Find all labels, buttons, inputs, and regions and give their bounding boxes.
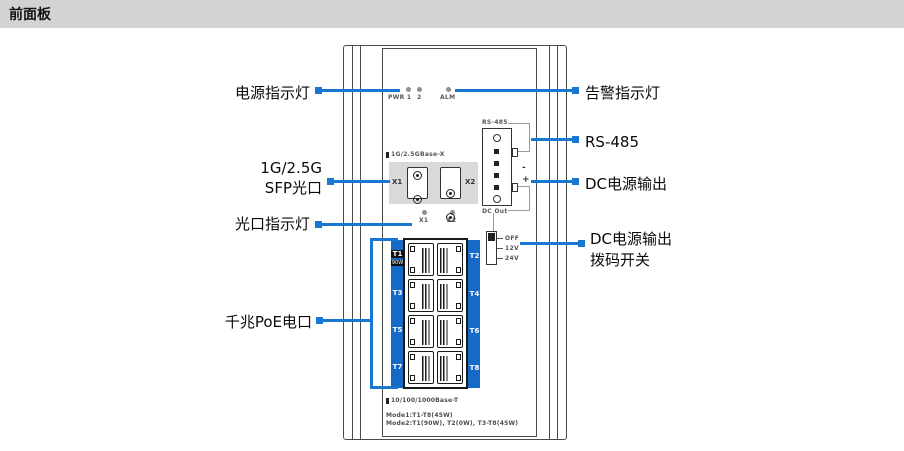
rj45-pins xyxy=(440,284,449,309)
callout-square xyxy=(572,178,579,185)
rj45-latch-tab xyxy=(456,318,461,324)
connector-line xyxy=(529,123,530,152)
poe-port-label: T5 xyxy=(391,326,404,334)
callout-bracket-poe-bottom xyxy=(370,386,398,389)
callout-square xyxy=(572,136,579,143)
rj45-latch-tab xyxy=(456,354,461,360)
rj45-port xyxy=(437,315,463,348)
rj45-port xyxy=(437,279,463,312)
terminal-tab-upper xyxy=(512,148,518,157)
rj45-port xyxy=(408,279,434,312)
rj45-latch-tab xyxy=(410,267,415,273)
callout-line-dc-output xyxy=(531,180,572,183)
rj45-latch-tab xyxy=(456,339,461,345)
callout-sfp-label: 1G/2.5GSFP光口 xyxy=(180,158,322,198)
poe-port-label: T2 xyxy=(468,252,481,260)
dip-12v-label: 12V xyxy=(505,245,519,252)
rj45-latch-tab xyxy=(456,246,461,252)
rj45-pins xyxy=(440,320,449,345)
terminal-pin xyxy=(494,185,499,190)
dip-tick xyxy=(497,258,503,259)
callout-line-optical-led xyxy=(315,223,412,226)
sfp-x2-label: X2 xyxy=(465,178,475,186)
poe-port-label: T6 xyxy=(468,327,481,335)
connector-line xyxy=(508,210,530,211)
terminal-pin xyxy=(494,173,499,178)
terminal-tab-lower xyxy=(512,183,518,192)
sfp-x1-label: X1 xyxy=(392,178,402,186)
sfp-bore xyxy=(413,195,422,204)
alarm-led-dot xyxy=(446,87,451,92)
rj45-latch-tab xyxy=(410,303,415,309)
chassis-rail-line xyxy=(352,46,353,439)
callout-dip-line1: DC电源输出 xyxy=(590,230,672,248)
callout-sfp-line1: 1G/2.5G xyxy=(260,159,322,177)
callout-bracket-poe-top xyxy=(370,238,398,241)
callout-line-dip-switch xyxy=(520,242,578,245)
rj45-latch-tab xyxy=(456,303,461,309)
chassis-rail-line xyxy=(360,46,361,439)
callout-bracket-poe xyxy=(370,238,373,389)
mode1-label: Mode1:T1-T8(45W) xyxy=(386,412,453,419)
t1-power-badge: 90W xyxy=(391,260,404,266)
rj45-pins xyxy=(422,284,431,309)
callout-power-led-label: 电源指示灯 xyxy=(160,83,310,103)
dip-tick xyxy=(497,238,503,239)
poe-port-label: T3 xyxy=(391,289,404,297)
page-title: 前面板 xyxy=(9,4,51,24)
callout-dip-line2: 拨码开关 xyxy=(590,251,650,269)
optical-led-x1-label: X1 xyxy=(419,217,428,224)
dc-out-port-label: DC Out xyxy=(482,208,508,215)
connector-line xyxy=(508,123,530,124)
callout-line-rs485 xyxy=(531,138,572,141)
rj45-latch-tab xyxy=(410,354,415,360)
callout-line-sfp xyxy=(327,180,390,183)
dip-off-label: OFF xyxy=(505,235,519,242)
poe-port-label: T8 xyxy=(468,364,481,372)
rs485-port-label: RS-485 xyxy=(482,119,508,126)
callout-alarm-led-label: 告警指示灯 xyxy=(585,83,660,103)
sfp-section-label: 1G/2.5GBase-X xyxy=(391,151,445,158)
optical-led-x1-dot xyxy=(422,210,427,215)
header-bar: 前面板 xyxy=(0,0,904,28)
poe-port-label: T7 xyxy=(391,363,404,371)
rj45-pins xyxy=(422,320,431,345)
plus-sign-label: + xyxy=(522,175,530,185)
pwr2-led-dot xyxy=(417,87,422,92)
dip-tick xyxy=(497,248,503,249)
callout-sfp-line2: SFP光口 xyxy=(265,179,322,197)
rj45-port xyxy=(437,243,463,276)
rj45-latch-tab xyxy=(410,339,415,345)
callout-optical-led-label: 光口指示灯 xyxy=(160,214,310,234)
section-marker-icon xyxy=(386,152,389,158)
terminal-pin xyxy=(494,161,499,166)
connector-line xyxy=(529,186,530,211)
alarm-led-label: ALM xyxy=(440,94,455,101)
rj45-port xyxy=(408,351,434,384)
rj45-pins xyxy=(440,356,449,381)
mode2-label: Mode2:T1(90W), T2(0W), T3-T8(45W) xyxy=(386,420,518,427)
callout-line-power-led xyxy=(315,89,400,92)
pwr1-led-dot xyxy=(406,87,411,92)
base-t-label: 10/100/1000Base-T xyxy=(391,397,458,404)
callout-dc-output-label: DC电源输出 xyxy=(585,174,667,194)
rj45-port xyxy=(437,351,463,384)
rj45-port xyxy=(408,243,434,276)
callout-square xyxy=(578,240,585,247)
sfp-bore xyxy=(446,213,455,222)
minus-sign-label: - xyxy=(522,163,526,173)
pwr-led-label: PWR 1 xyxy=(388,94,411,101)
callout-square xyxy=(572,87,579,94)
callout-rs485-label: RS-485 xyxy=(585,132,639,152)
connector-line xyxy=(493,213,494,233)
rj45-pins xyxy=(440,248,449,273)
rj45-pins xyxy=(422,248,431,273)
callout-line-alarm-led xyxy=(455,89,572,92)
rj45-latch-tab xyxy=(410,318,415,324)
callout-poe-label: 千兆PoE电口 xyxy=(160,312,312,332)
callout-dip-switch-label: DC电源输出拨码开关 xyxy=(590,229,672,271)
section-marker-icon xyxy=(386,398,389,404)
sfp-bore xyxy=(446,189,455,198)
dip-switch-knob xyxy=(488,233,495,241)
terminal-screw-bottom xyxy=(493,195,501,203)
sfp-bore xyxy=(413,171,422,180)
rj45-latch-tab xyxy=(456,375,461,381)
dip-24v-label: 24V xyxy=(505,255,519,262)
rj45-latch-tab xyxy=(456,282,461,288)
rj45-port xyxy=(408,315,434,348)
terminal-screw-top xyxy=(493,134,501,142)
rj45-latch-tab xyxy=(410,246,415,252)
pwr2-led-label: 2 xyxy=(417,94,421,101)
rj45-latch-tab xyxy=(456,267,461,273)
rj45-pins xyxy=(422,356,431,381)
poe-port-label: T1 xyxy=(391,250,404,258)
rj45-latch-tab xyxy=(410,282,415,288)
rj45-latch-tab xyxy=(410,375,415,381)
callout-line-poe xyxy=(316,319,372,322)
rj45-port-block xyxy=(403,238,468,389)
connector-line xyxy=(518,151,530,152)
poe-port-label: T4 xyxy=(468,290,481,298)
terminal-pin xyxy=(494,149,499,154)
